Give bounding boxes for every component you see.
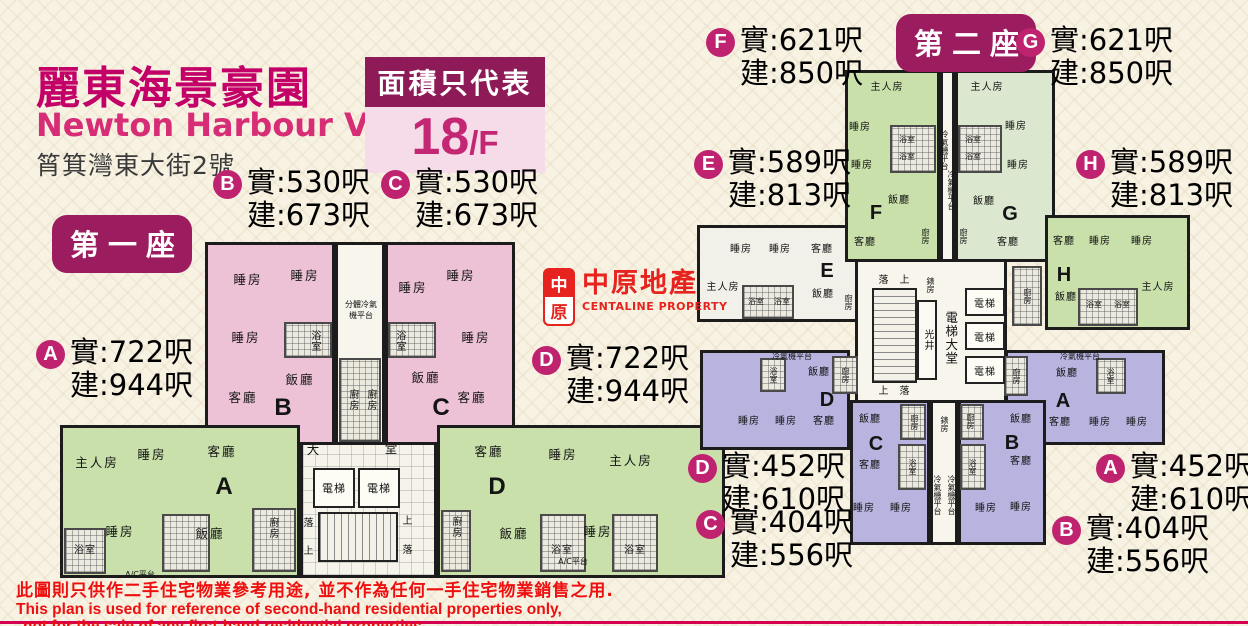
room-label: 客廳 [854, 238, 876, 248]
unit-letter: C [869, 434, 883, 454]
room-label: 睡房 [738, 417, 760, 427]
tiled-bath-area [284, 322, 332, 358]
room-label: 客廳 [1049, 418, 1071, 428]
room-label: 廚房 [1012, 368, 1020, 384]
room-label: 浴室 [908, 459, 916, 475]
tower2-badge: 第二座 [896, 14, 1036, 72]
room-label: 睡房 [398, 282, 427, 295]
elevator-box: 電梯 [313, 468, 355, 508]
room-label: 睡房 [1089, 237, 1111, 247]
floor-number: 18/F [365, 107, 545, 173]
disclaimer-line-cn: 此圖則只供作二手住宅物業參考用途, 並不作為任何一手住宅物業銷售之用. [16, 582, 614, 601]
room-label: 浴室 [1086, 301, 1102, 309]
room-label: 客廳 [1053, 237, 1075, 247]
area-label-t1-a: A 實:722呎建:944呎 [36, 336, 193, 402]
room-label: 冷氣機平台 [947, 170, 955, 210]
staircase [872, 288, 917, 383]
room-label: 浴室 [748, 298, 764, 306]
elevator-box: 電梯 [358, 468, 400, 508]
room-label: 客廳 [811, 245, 833, 255]
elevator-box: 電梯 [965, 356, 1005, 384]
room-label: 冷氣機平台 [940, 130, 948, 170]
tiled-bath-area [890, 125, 936, 173]
room-label: 電梯大堂 [944, 311, 957, 365]
room-label: 落 [900, 387, 911, 397]
staircase [318, 512, 398, 562]
centaline-name-en: CENTALINE PROPERTY [582, 300, 728, 313]
room-label: 飯廳 [888, 196, 910, 206]
room-label: 上 [900, 276, 911, 286]
room-label: 浴室 [769, 367, 777, 383]
unit-letter: B [274, 396, 291, 420]
elevator-box: 電梯 [965, 288, 1005, 316]
room-label: 客廳 [997, 238, 1019, 248]
tiled-bath-area [162, 514, 210, 572]
room-label: 睡房 [1131, 237, 1153, 247]
room-label: 上 [304, 547, 315, 557]
room-label: 客廳 [228, 392, 257, 405]
room-label: 睡房 [730, 245, 752, 255]
room-label: 主人房 [1142, 283, 1175, 293]
room-label: 浴室 [899, 136, 915, 144]
room-label: 冷氣機平台 [933, 475, 941, 515]
room-label: 冷氣機平台 [772, 353, 812, 361]
room-label: 睡房 [233, 274, 262, 287]
disclaimer-line-en-1: This plan is used for reference of secon… [16, 601, 614, 618]
room-label: 客廳 [1010, 457, 1032, 467]
room-label: 睡房 [851, 161, 873, 171]
room-label: 廚房 [966, 413, 974, 429]
unit-letter: B [1005, 433, 1019, 453]
room-label: 客廳 [859, 461, 881, 471]
area-label-t2-h: H 實:589呎建:813呎 [1076, 146, 1233, 212]
street-address: 筲箕灣東大街2號 [36, 146, 235, 182]
room-label: 浴室 [74, 546, 96, 556]
room-label: 錶房 [940, 416, 948, 432]
room-label: 客廳 [457, 392, 486, 405]
room-label: 睡房 [1007, 161, 1029, 171]
area-label-t2-a: A 實:452呎建:610呎 [1096, 450, 1248, 516]
unit-letter: C [432, 396, 449, 420]
room-label: 睡房 [548, 449, 577, 462]
room-label: A/C平台 [125, 571, 155, 579]
room-label: 睡房 [231, 332, 260, 345]
floor-badge: 面積只代表 18/F [365, 57, 545, 173]
room-label: 廚房 [365, 389, 375, 411]
room-label: 睡房 [1126, 418, 1148, 428]
room-label: 廚房 [267, 517, 277, 539]
room-label: 分體冷氣 [345, 301, 377, 309]
room-label: 睡房 [461, 332, 490, 345]
elevator-box: 電梯 [965, 322, 1005, 350]
room-label: 睡房 [890, 504, 912, 514]
unit-letter: F [870, 203, 882, 223]
centaline-logo: 中 原 中原地產 CENTALINE PROPERTY [543, 268, 728, 326]
room-label: 飯廳 [1056, 369, 1078, 379]
unit-letter: G [1002, 204, 1018, 224]
room-label: 飯廳 [285, 374, 314, 387]
room-label: 睡房 [137, 449, 166, 462]
room-label: 廚房 [921, 228, 929, 244]
room-label: 客廳 [474, 446, 503, 459]
room-label: 廚房 [841, 367, 849, 383]
room-label: 廚房 [1023, 288, 1031, 304]
room-label: 廚房 [959, 228, 967, 244]
disclaimer-line-en-2: not for the sale of any first-hand resid… [16, 618, 614, 626]
room-label: 冷氣機平台 [1060, 353, 1100, 361]
room-label: 堂 [385, 443, 400, 456]
room-label: 冷氣機平台 [947, 475, 955, 515]
disclaimer: 此圖則只供作二手住宅物業參考用途, 並不作為任何一手住宅物業銷售之用. This… [16, 582, 614, 626]
room-label: A/C平台 [558, 558, 588, 566]
room-label: 浴室 [965, 136, 981, 144]
unit-letter: E [820, 261, 833, 281]
area-label-t2-g: G 實:621呎建:850呎 [1016, 24, 1173, 90]
room-label: 廚房 [347, 389, 357, 411]
room-label: 浴室 [774, 298, 790, 306]
area-label-t1-d: D 實:722呎建:944呎 [532, 342, 689, 408]
unit-letter: H [1057, 265, 1071, 285]
room-label: 浴室 [309, 330, 319, 352]
room-label: 睡房 [853, 504, 875, 514]
room-label: 落 [304, 519, 315, 529]
room-label: 睡房 [1005, 122, 1027, 132]
room-label: 飯廳 [808, 368, 830, 378]
room-label: 廚房 [910, 414, 918, 430]
room-label: 睡房 [1010, 503, 1032, 513]
room-label: 飯廳 [1010, 415, 1032, 425]
area-label-t1-b: B 實:530呎建:673呎 [213, 166, 370, 232]
room-label: 浴室 [899, 153, 915, 161]
room-label: 睡房 [105, 526, 134, 539]
room-label: 睡房 [769, 245, 791, 255]
room-label: 落 [879, 276, 890, 286]
room-label: 錶房 [926, 277, 934, 293]
room-label: 飯廳 [499, 528, 528, 541]
tiled-bath-area [958, 125, 1002, 173]
room-label: 睡房 [975, 504, 997, 514]
room-label: 浴室 [624, 546, 646, 556]
floor-badge-caption: 面積只代表 [365, 57, 545, 107]
unit-letter: D [488, 475, 505, 499]
room-label: 浴室 [394, 330, 404, 352]
room-label: 睡房 [775, 417, 797, 427]
unit-letter: D [820, 390, 834, 410]
centaline-name-cn: 中原地產 [582, 268, 728, 300]
area-label-t2-c: C 實:404呎建:556呎 [696, 506, 853, 572]
room-label: 浴室 [968, 459, 976, 475]
room-label: 飯廳 [195, 528, 224, 541]
room-label: 浴室 [1114, 301, 1130, 309]
room-label: 飯廳 [973, 197, 995, 207]
room-label: 主人房 [609, 455, 653, 468]
floorplan-canvas: 麗東海景豪園 Newton Harbour View 筲箕灣東大街2號 面積只代… [0, 0, 1248, 626]
room-label: 飯廳 [859, 415, 881, 425]
room-label: 睡房 [446, 270, 475, 283]
room-label: 落 [403, 546, 414, 556]
room-label: 飯廳 [1055, 293, 1077, 303]
room-label: 浴室 [965, 153, 981, 161]
room-label: 浴室 [1106, 368, 1114, 384]
area-label-t2-b: B 實:404呎建:556呎 [1052, 512, 1209, 578]
centaline-seal-icon: 中 原 [543, 268, 575, 326]
unit-letter: A [1056, 391, 1070, 411]
area-label-t2-f: F 實:621呎建:850呎 [706, 24, 863, 90]
unit-letter: A [215, 475, 232, 499]
room-label: 飯廳 [812, 290, 834, 300]
area-label-t2-e: E 實:589呎建:813呎 [694, 146, 851, 212]
room-label: 主人房 [871, 83, 904, 93]
room-label: 浴室 [551, 546, 573, 556]
room-label: 機平台 [349, 312, 373, 320]
room-label: 客廳 [207, 446, 236, 459]
room-label: 主人房 [971, 83, 1004, 93]
tiled-bath-area [612, 514, 658, 572]
room-label: 廚房 [450, 516, 460, 538]
area-label-t1-c: C 實:530呎建:673呎 [381, 166, 538, 232]
room-label: 睡房 [849, 123, 871, 133]
room-label: 上 [403, 517, 414, 527]
room-label: 睡房 [583, 526, 612, 539]
room-label: 客廳 [813, 417, 835, 427]
room-label: 睡房 [1089, 418, 1111, 428]
room-label: 廚房 [844, 294, 852, 310]
room-label: 飯廳 [411, 372, 440, 385]
room-label: 上 [879, 387, 890, 397]
room-label: 光井 [922, 329, 932, 351]
room-label: 睡房 [290, 270, 319, 283]
room-label: 大 [307, 444, 322, 457]
room-label: 主人房 [75, 457, 119, 470]
tower1-badge: 第一座 [52, 215, 192, 273]
